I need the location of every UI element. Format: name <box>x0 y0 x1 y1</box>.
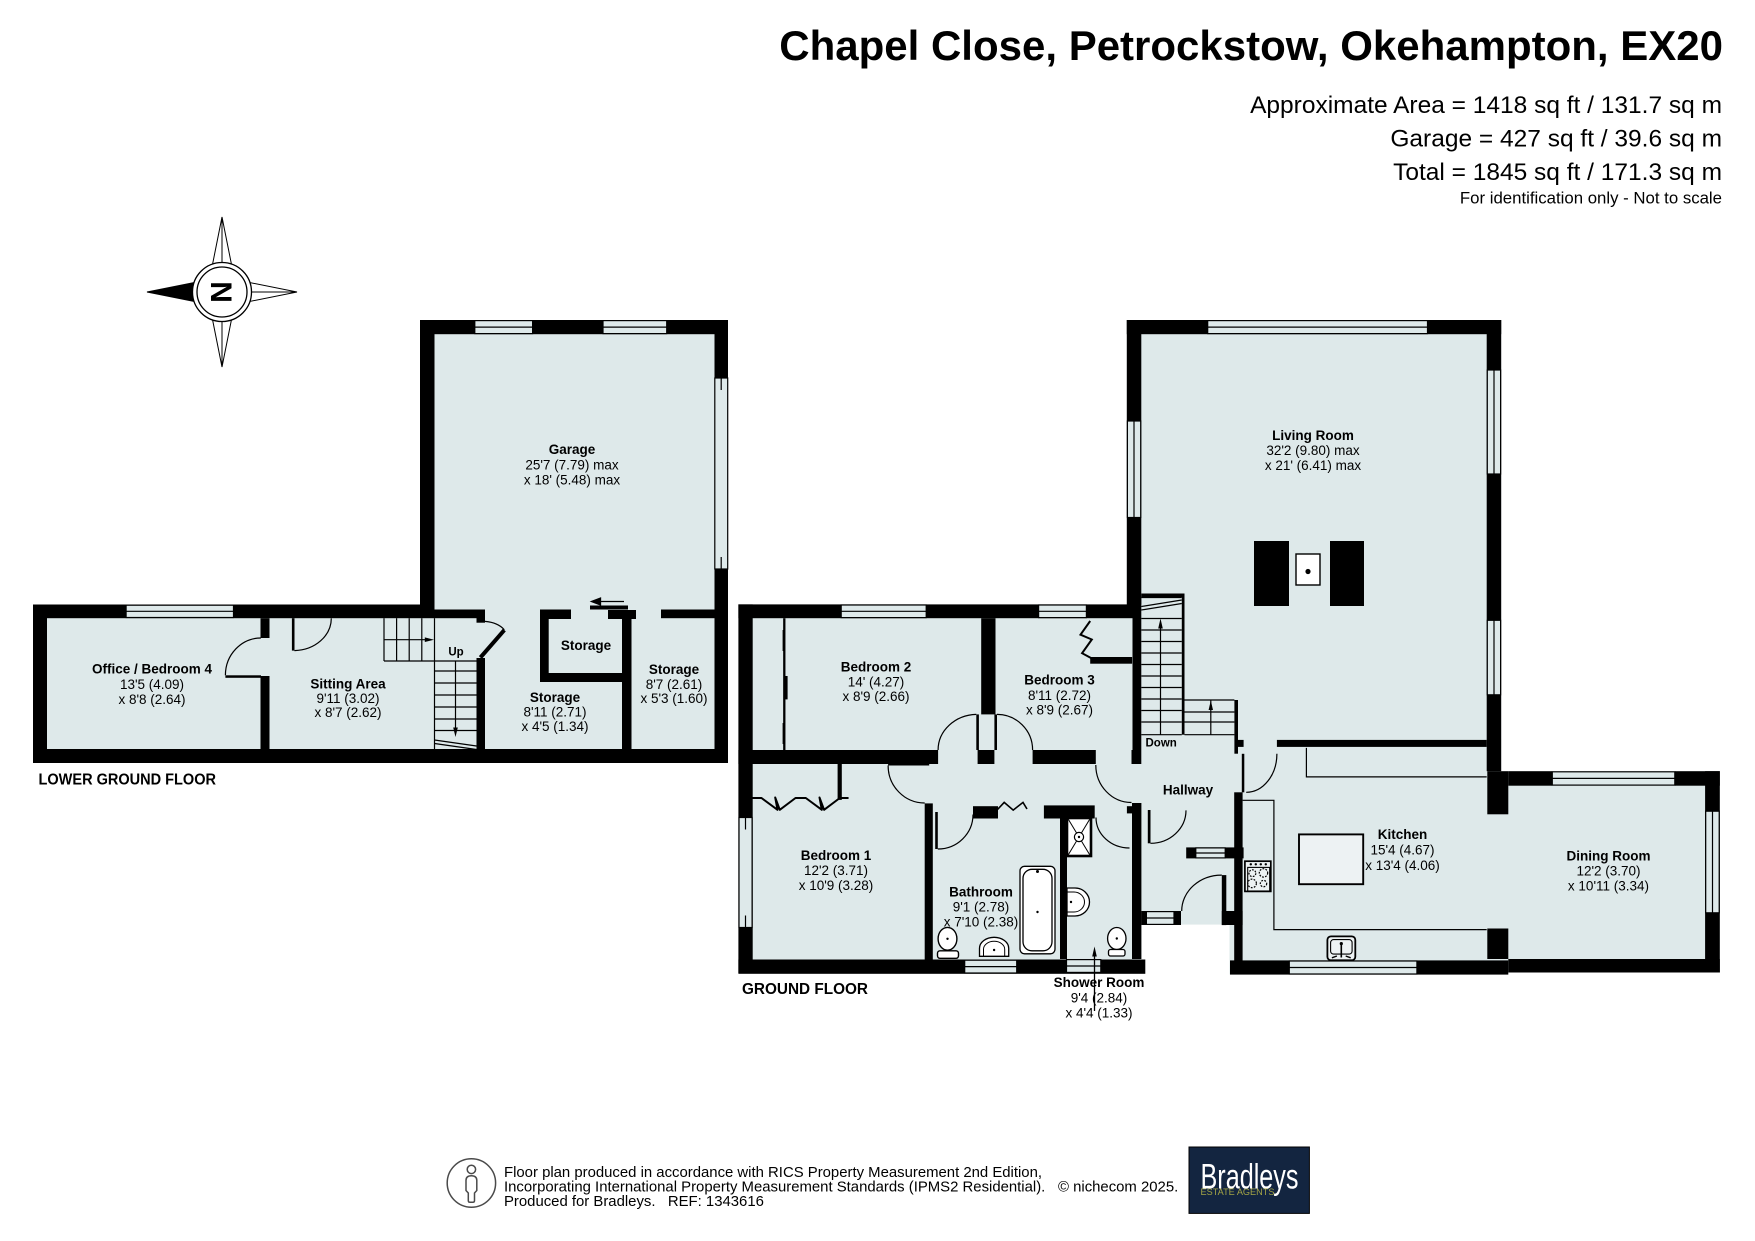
svg-text:N: N <box>206 281 239 303</box>
svg-text:Bathroom: Bathroom <box>949 885 1013 900</box>
svg-text:x 4'4 (1.33): x 4'4 (1.33) <box>1065 1006 1132 1021</box>
svg-text:Bedroom 3: Bedroom 3 <box>1024 673 1095 688</box>
svg-text:Bedroom 2: Bedroom 2 <box>841 660 912 675</box>
svg-text:Garage: Garage <box>549 442 596 457</box>
svg-text:12'2 (3.70): 12'2 (3.70) <box>1576 864 1640 879</box>
svg-text:x 5'3 (1.60): x 5'3 (1.60) <box>640 691 707 706</box>
svg-text:GROUND FLOOR: GROUND FLOOR <box>742 981 868 998</box>
svg-text:x 8'7 (2.62): x 8'7 (2.62) <box>314 705 381 720</box>
svg-text:Kitchen: Kitchen <box>1378 827 1428 842</box>
svg-text:Storage: Storage <box>530 690 581 705</box>
svg-text:x 21' (6.41) max: x 21' (6.41) max <box>1265 458 1362 473</box>
svg-text:25'7 (7.79) max: 25'7 (7.79) max <box>525 458 619 473</box>
svg-text:Office / Bedroom 4: Office / Bedroom 4 <box>92 662 213 677</box>
svg-text:Produced for Bradleys. REF:: Produced for Bradleys. REF: 1343616 <box>504 1194 764 1210</box>
svg-text:x 10'11 (3.34): x 10'11 (3.34) <box>1568 879 1649 894</box>
svg-text:Down: Down <box>1146 738 1177 750</box>
svg-text:12'2 (3.71): 12'2 (3.71) <box>804 863 868 878</box>
svg-text:9'1 (2.78): 9'1 (2.78) <box>953 900 1010 915</box>
svg-text:9'11 (3.02): 9'11 (3.02) <box>316 691 379 706</box>
svg-text:Chapel Close, Petrockstow, Oke: Chapel Close, Petrockstow, Okehampton, E… <box>779 22 1723 69</box>
svg-text:x 18' (5.48) max: x 18' (5.48) max <box>524 473 621 488</box>
svg-text:13'5 (4.09): 13'5 (4.09) <box>120 677 184 692</box>
svg-text:8'11 (2.71): 8'11 (2.71) <box>523 705 586 720</box>
svg-text:Living Room: Living Room <box>1272 428 1354 443</box>
svg-text:ESTATE AGENTS: ESTATE AGENTS <box>1201 1187 1275 1198</box>
svg-text:x 8'8 (2.64): x 8'8 (2.64) <box>118 692 185 707</box>
svg-text:8'11 (2.72): 8'11 (2.72) <box>1028 688 1091 703</box>
svg-text:Hallway: Hallway <box>1163 783 1214 798</box>
svg-text:Dining Room: Dining Room <box>1567 849 1651 864</box>
svg-text:© nichecom 2025.: © nichecom 2025. <box>1058 1180 1178 1196</box>
svg-text:x 8'9 (2.66): x 8'9 (2.66) <box>842 689 909 704</box>
svg-text:14' (4.27): 14' (4.27) <box>848 675 905 690</box>
svg-text:For identification only - Not: For identification only - Not to scale <box>1460 189 1722 208</box>
svg-text:Shower Room: Shower Room <box>1054 975 1145 990</box>
svg-text:Bedroom 1: Bedroom 1 <box>801 848 872 863</box>
svg-text:x 4'5 (1.34): x 4'5 (1.34) <box>521 719 588 734</box>
svg-text:x 8'9 (2.67): x 8'9 (2.67) <box>1026 703 1093 718</box>
svg-text:x 13'4 (4.06): x 13'4 (4.06) <box>1365 858 1440 873</box>
svg-text:Garage = 427 sq ft / 39.6 sq m: Garage = 427 sq ft / 39.6 sq m <box>1390 126 1722 153</box>
svg-text:Sitting Area: Sitting Area <box>310 677 386 692</box>
svg-text:15'4 (4.67): 15'4 (4.67) <box>1370 843 1434 858</box>
svg-text:32'2 (9.80) max: 32'2 (9.80) max <box>1266 443 1360 458</box>
svg-text:8'7 (2.61): 8'7 (2.61) <box>646 677 703 692</box>
svg-text:x 10'9 (3.28): x 10'9 (3.28) <box>799 878 874 893</box>
svg-text:Total = 1845 sq ft / 171.3 sq: Total = 1845 sq ft / 171.3 sq m <box>1393 159 1722 186</box>
svg-text:Storage: Storage <box>561 638 612 653</box>
svg-text:Storage: Storage <box>649 662 700 677</box>
svg-text:LOWER GROUND FLOOR: LOWER GROUND FLOOR <box>39 772 217 789</box>
svg-text:Approximate Area = 1418 sq ft: Approximate Area = 1418 sq ft / 131.7 sq… <box>1250 92 1722 119</box>
svg-text:Up: Up <box>448 647 463 659</box>
svg-text:9'4 (2.84): 9'4 (2.84) <box>1071 991 1128 1006</box>
svg-text:x 7'10 (2.38): x 7'10 (2.38) <box>944 915 1019 930</box>
